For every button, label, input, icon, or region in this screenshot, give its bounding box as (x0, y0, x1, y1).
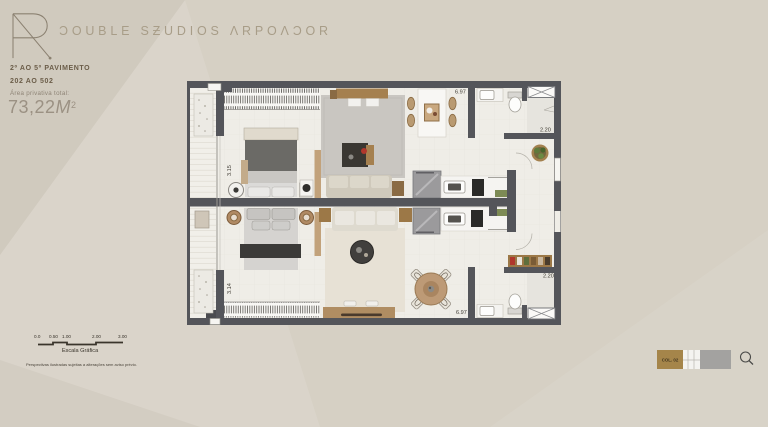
svg-text:0.0: 0.0 (34, 334, 41, 339)
svg-text:Perspectivas ilustradas sujeit: Perspectivas ilustradas sujeitas a alter… (26, 362, 137, 367)
svg-text:0.50: 0.50 (49, 334, 58, 339)
svg-text:1.00: 1.00 (62, 334, 71, 339)
svg-text:COL. 02: COL. 02 (662, 358, 679, 363)
svg-text:6.97: 6.97 (455, 90, 466, 96)
svg-text:3.14: 3.14 (227, 283, 233, 294)
svg-text:3.15: 3.15 (227, 165, 233, 176)
svg-text:2.20: 2.20 (540, 128, 551, 134)
svg-text:2.20: 2.20 (543, 274, 554, 280)
svg-text:3.00: 3.00 (118, 334, 127, 339)
svg-text:6.97: 6.97 (456, 310, 467, 316)
svg-text:2.00: 2.00 (92, 334, 101, 339)
svg-text:Escala Gráfica: Escala Gráfica (62, 348, 99, 354)
